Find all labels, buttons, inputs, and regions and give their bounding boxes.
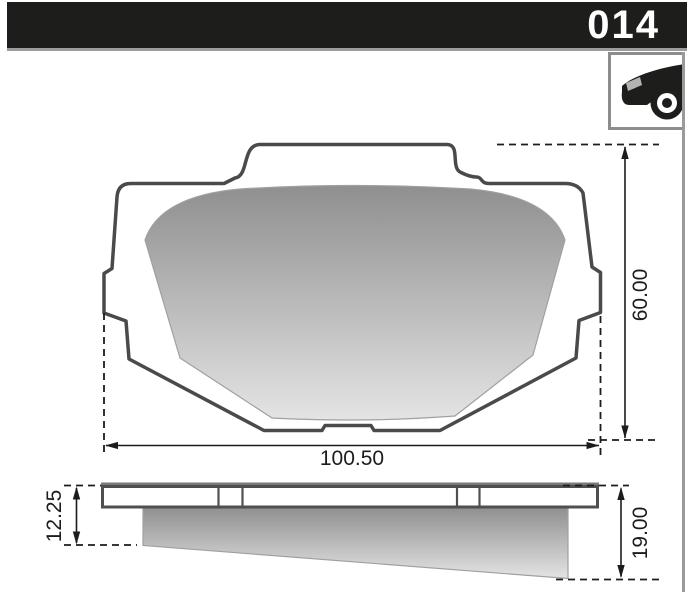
side-right-thickness-label: 19.00: [629, 488, 653, 578]
right-thickness-dimension: [617, 487, 624, 578]
left-thickness-dimension: [73, 487, 80, 545]
arrowhead-right: [587, 442, 600, 449]
front-width-label: 100.50: [307, 447, 397, 471]
front-height-label: 60.00: [629, 250, 653, 340]
arrowhead-left: [105, 442, 118, 449]
arrowhead-top: [621, 146, 628, 159]
catalog-page: 014: [0, 0, 687, 592]
friction-material-side: [143, 507, 568, 579]
height-dimension: [621, 146, 628, 439]
technical-drawing: [0, 0, 687, 592]
backing-plate-side: [103, 487, 598, 508]
arrowhead-bottom: [621, 426, 628, 439]
side-left-thickness-label: 12.25: [43, 471, 67, 561]
